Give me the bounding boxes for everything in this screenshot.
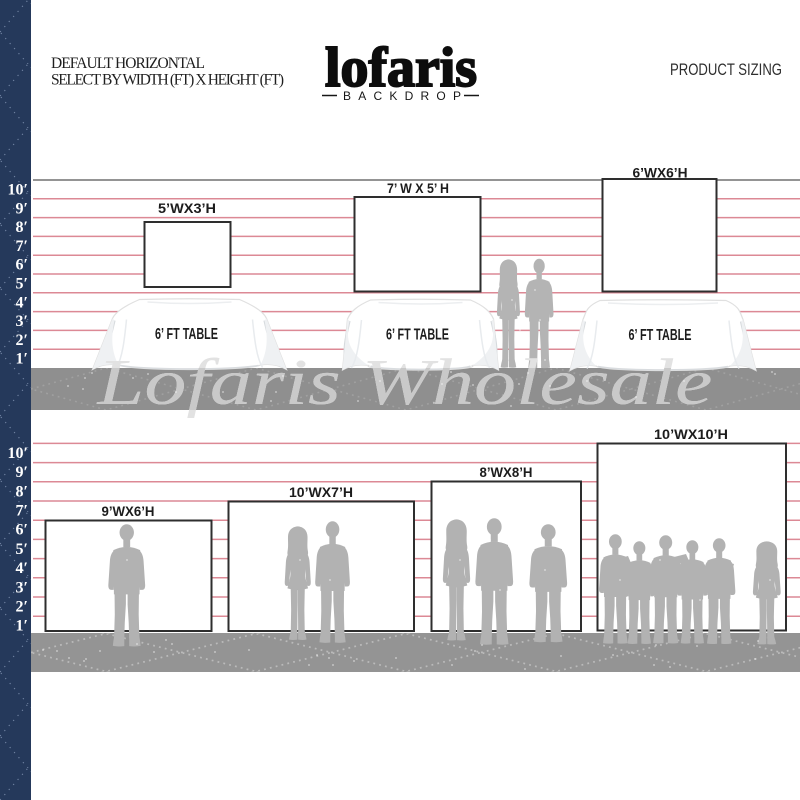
svg-text:6’ FT TABLE: 6’ FT TABLE (155, 326, 218, 343)
svg-text:6′: 6′ (16, 257, 29, 274)
svg-text:6’ FT TABLE: 6’ FT TABLE (386, 327, 449, 344)
svg-text:5’WX3’H: 5’WX3’H (158, 200, 216, 216)
svg-text:4′: 4′ (16, 560, 29, 577)
svg-text:6’WX6’H: 6’WX6’H (633, 165, 688, 181)
svg-text:10’WX10’H: 10’WX10’H (654, 426, 728, 442)
svg-text:1′: 1′ (16, 351, 29, 368)
svg-text:6’ FT TABLE: 6’ FT TABLE (629, 327, 692, 344)
svg-text:9′: 9′ (16, 464, 29, 481)
svg-text:5′: 5′ (16, 276, 29, 293)
svg-text:10′: 10′ (8, 445, 29, 462)
svg-text:PRODUCT SIZING: PRODUCT SIZING (670, 61, 782, 79)
svg-text:6′: 6′ (16, 522, 29, 539)
svg-text:3′: 3′ (16, 579, 29, 596)
svg-text:8’WX8’H: 8’WX8’H (480, 464, 533, 480)
svg-text:1′: 1′ (16, 618, 29, 635)
svg-text:7’ W X 5’ H: 7’ W X 5’ H (387, 180, 449, 196)
svg-text:9’WX6’H: 9’WX6’H (102, 503, 155, 519)
svg-text:7′: 7′ (16, 238, 29, 255)
svg-text:8′: 8′ (16, 483, 29, 500)
svg-text:7′: 7′ (16, 503, 29, 520)
svg-text:DEFAULT HORIZONTAL: DEFAULT HORIZONTAL (51, 55, 205, 72)
svg-text:10’WX7’H: 10’WX7’H (289, 484, 353, 500)
svg-text:SELECT BY WIDTH (FT) X HEIGHT: SELECT BY WIDTH (FT) X HEIGHT (FT) (51, 72, 284, 89)
svg-text:2′: 2′ (16, 599, 29, 616)
svg-text:2′: 2′ (16, 332, 29, 349)
svg-text:8′: 8′ (16, 219, 29, 236)
svg-text:9′: 9′ (16, 200, 29, 217)
svg-text:4′: 4′ (16, 294, 29, 311)
svg-text:3′: 3′ (16, 313, 29, 330)
svg-text:10′: 10′ (8, 182, 29, 199)
svg-text:5′: 5′ (16, 541, 29, 558)
